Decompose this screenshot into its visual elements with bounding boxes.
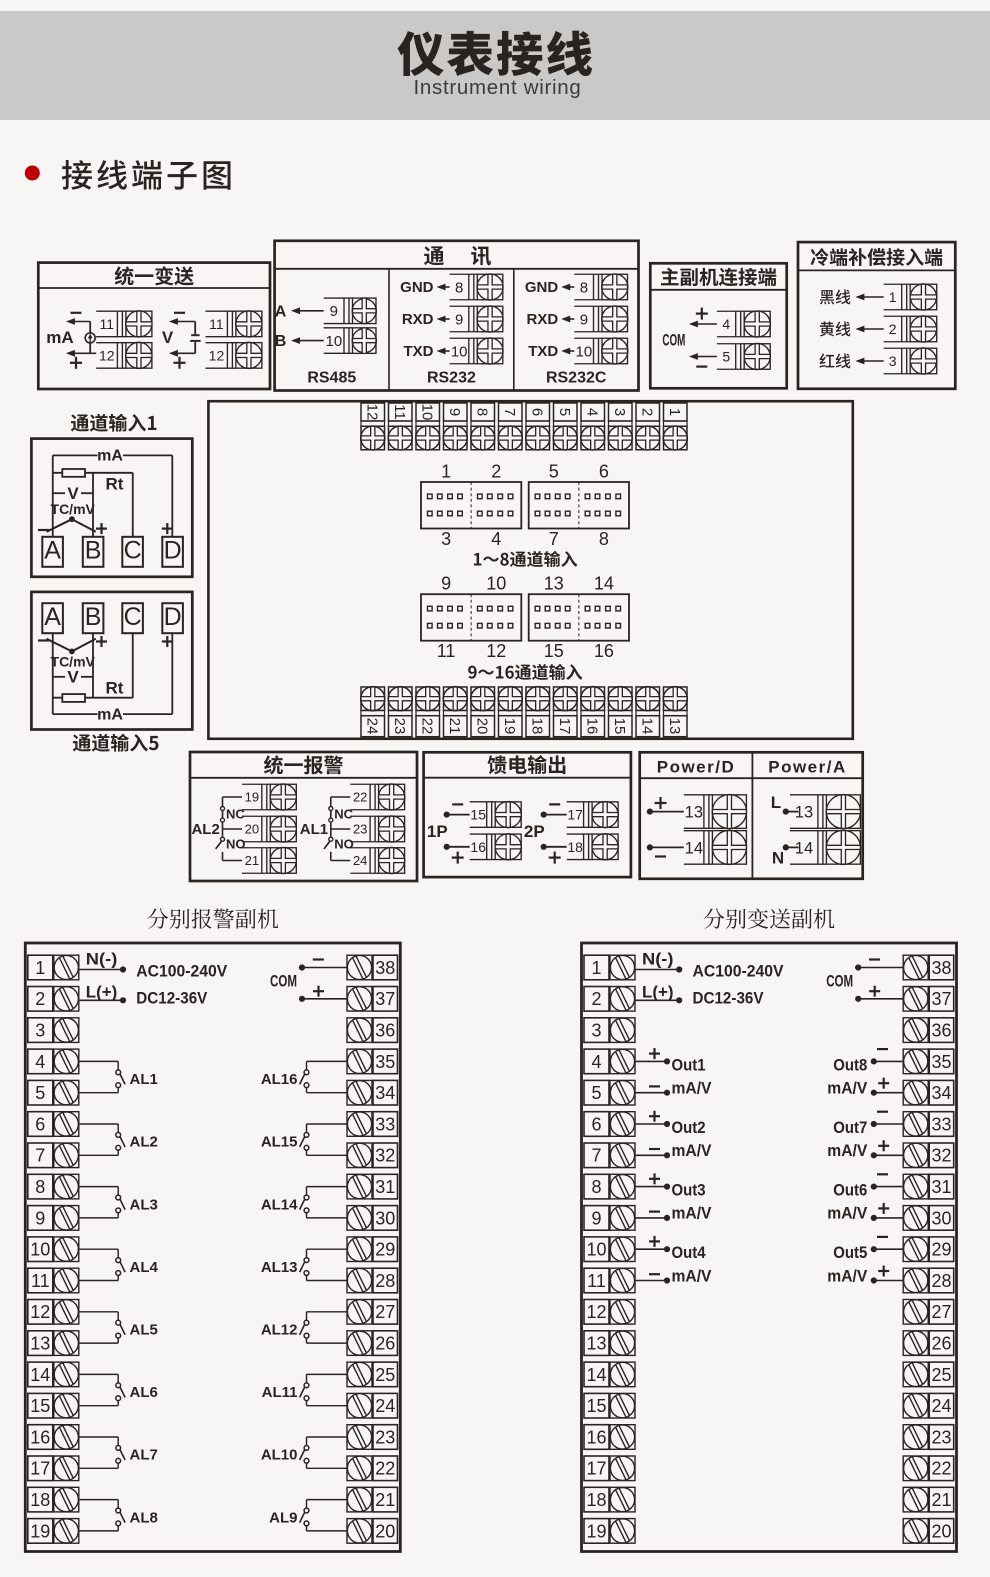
svg-text:DC12-36V: DC12-36V: [693, 989, 765, 1008]
svg-text:29: 29: [931, 1240, 951, 1260]
svg-text:N(-): N(-): [642, 950, 674, 969]
svg-text:DC12-36V: DC12-36V: [136, 989, 208, 1008]
svg-text:7: 7: [549, 529, 559, 549]
svg-text:TXD: TXD: [528, 343, 558, 360]
svg-text:24: 24: [353, 853, 367, 868]
svg-text:Out1: Out1: [672, 1055, 706, 1074]
svg-text:17: 17: [586, 1459, 606, 1479]
svg-text:37: 37: [375, 989, 395, 1009]
svg-text:B: B: [85, 537, 102, 565]
svg-text:11: 11: [437, 641, 456, 661]
svg-text:9: 9: [35, 1208, 45, 1228]
svg-text:8: 8: [35, 1177, 45, 1197]
svg-text:6: 6: [35, 1114, 45, 1134]
svg-text:AL7: AL7: [130, 1447, 158, 1464]
svg-text:N: N: [772, 849, 784, 868]
svg-text:14: 14: [795, 839, 813, 857]
svg-text:24: 24: [375, 1396, 395, 1416]
svg-text:mA: mA: [97, 707, 123, 724]
svg-text:5: 5: [549, 462, 559, 482]
svg-text:NO: NO: [334, 837, 354, 852]
svg-text:11: 11: [100, 316, 115, 332]
svg-text:14: 14: [30, 1365, 50, 1385]
svg-text:12: 12: [486, 641, 506, 661]
svg-text:COM: COM: [826, 972, 853, 991]
svg-text:24: 24: [931, 1396, 951, 1416]
svg-text:6: 6: [529, 408, 546, 416]
svg-text:AL9: AL9: [269, 1509, 297, 1526]
svg-text:21: 21: [245, 853, 259, 868]
svg-text:18: 18: [586, 1490, 606, 1510]
svg-text:6: 6: [591, 1114, 601, 1134]
svg-text:Out8: Out8: [833, 1055, 867, 1074]
svg-text:4: 4: [591, 1052, 601, 1072]
svg-text:23: 23: [375, 1427, 395, 1447]
svg-text:28: 28: [931, 1271, 951, 1291]
svg-text:C: C: [124, 537, 142, 565]
svg-text:Out3: Out3: [672, 1181, 706, 1200]
svg-text:37: 37: [931, 989, 951, 1009]
svg-text:4: 4: [491, 529, 501, 549]
svg-text:8: 8: [455, 279, 463, 296]
svg-text:mA: mA: [46, 328, 73, 347]
svg-text:L: L: [771, 793, 781, 812]
svg-text:16: 16: [584, 718, 601, 735]
svg-text:20: 20: [474, 718, 491, 735]
svg-text:COM: COM: [662, 332, 685, 350]
svg-text:Out5: Out5: [833, 1243, 867, 1262]
svg-text:34: 34: [375, 1083, 395, 1103]
svg-text:23: 23: [353, 822, 367, 837]
svg-text:A: A: [275, 303, 287, 320]
svg-text:2: 2: [591, 989, 601, 1009]
svg-text:mA/V: mA/V: [827, 1079, 868, 1098]
svg-text:7: 7: [591, 1146, 601, 1166]
svg-text:Out7: Out7: [833, 1118, 867, 1137]
svg-text:1: 1: [591, 958, 601, 978]
svg-text:8: 8: [591, 1177, 601, 1197]
svg-text:19: 19: [586, 1521, 606, 1541]
svg-text:26: 26: [375, 1334, 395, 1354]
svg-text:9: 9: [580, 311, 588, 328]
svg-text:5: 5: [35, 1083, 45, 1103]
svg-text:27: 27: [375, 1302, 395, 1322]
svg-text:38: 38: [931, 958, 951, 978]
svg-text:TXD: TXD: [404, 343, 434, 360]
svg-text:AL1: AL1: [300, 821, 328, 838]
svg-text:3: 3: [889, 353, 897, 369]
svg-text:20: 20: [375, 1521, 395, 1541]
svg-text:19: 19: [501, 718, 518, 735]
svg-text:2P: 2P: [524, 822, 545, 841]
svg-text:12: 12: [586, 1302, 606, 1322]
svg-text:2: 2: [35, 989, 45, 1009]
svg-text:4: 4: [35, 1052, 45, 1072]
svg-text:6: 6: [599, 462, 609, 482]
svg-text:2: 2: [889, 321, 897, 337]
svg-text:RS485: RS485: [307, 370, 356, 387]
svg-text:Rt: Rt: [106, 679, 124, 698]
svg-text:Power/D: Power/D: [657, 757, 736, 776]
svg-text:A: A: [44, 603, 61, 631]
svg-text:AL12: AL12: [261, 1321, 298, 1338]
svg-text:COM: COM: [270, 972, 297, 991]
svg-text:1: 1: [441, 462, 451, 482]
svg-text:RS232: RS232: [427, 370, 476, 387]
svg-text:17: 17: [556, 718, 573, 735]
svg-text:32: 32: [375, 1146, 395, 1166]
svg-text:Rt: Rt: [106, 475, 124, 494]
svg-text:4: 4: [722, 316, 730, 332]
svg-text:13: 13: [30, 1334, 50, 1354]
svg-text:25: 25: [931, 1365, 951, 1385]
svg-text:AC100-240V: AC100-240V: [693, 962, 785, 981]
svg-text:33: 33: [931, 1114, 951, 1134]
svg-text:21: 21: [375, 1490, 395, 1510]
svg-text:mA/V: mA/V: [827, 1141, 868, 1160]
svg-text:15: 15: [30, 1396, 50, 1416]
svg-text:N(-): N(-): [86, 950, 118, 969]
svg-text:4: 4: [584, 408, 601, 416]
svg-text:5: 5: [556, 408, 573, 416]
svg-text:10: 10: [576, 343, 593, 360]
svg-text:17: 17: [567, 807, 583, 823]
svg-text:11: 11: [31, 1271, 50, 1291]
svg-text:15: 15: [470, 807, 486, 823]
svg-text:mA/V: mA/V: [672, 1141, 713, 1160]
svg-text:RS232C: RS232C: [546, 370, 607, 387]
svg-text:1P: 1P: [427, 822, 448, 841]
svg-text:12: 12: [99, 347, 115, 363]
svg-text:C: C: [124, 603, 142, 631]
svg-text:Out4: Out4: [672, 1243, 706, 1262]
svg-text:V: V: [67, 668, 79, 687]
svg-text:mA/V: mA/V: [672, 1204, 713, 1223]
svg-text:10: 10: [586, 1240, 606, 1260]
svg-text:10: 10: [419, 404, 436, 421]
svg-text:B: B: [275, 333, 287, 350]
svg-text:9: 9: [330, 303, 338, 320]
svg-text:AL2: AL2: [191, 821, 219, 838]
svg-text:Out2: Out2: [672, 1118, 706, 1137]
svg-text:L(+): L(+): [86, 983, 118, 1002]
svg-text:27: 27: [931, 1302, 951, 1322]
svg-text:28: 28: [375, 1271, 395, 1291]
svg-text:12: 12: [30, 1302, 50, 1322]
svg-text:34: 34: [931, 1083, 951, 1103]
svg-text:mA/V: mA/V: [827, 1204, 868, 1223]
svg-text:8: 8: [474, 408, 491, 416]
svg-text:5: 5: [722, 349, 730, 365]
svg-text:AL16: AL16: [261, 1071, 298, 1088]
svg-text:16: 16: [586, 1427, 606, 1447]
svg-text:AC100-240V: AC100-240V: [136, 962, 228, 981]
svg-text:10: 10: [451, 343, 468, 360]
svg-text:3: 3: [591, 1021, 601, 1041]
svg-text:AL1: AL1: [130, 1071, 158, 1088]
svg-text:30: 30: [375, 1208, 395, 1228]
svg-text:23: 23: [391, 718, 408, 735]
svg-text:17: 17: [30, 1459, 50, 1479]
svg-text:29: 29: [375, 1240, 395, 1260]
svg-text:32: 32: [931, 1146, 951, 1166]
svg-text:22: 22: [931, 1459, 951, 1479]
svg-text:13: 13: [685, 804, 703, 822]
svg-text:14: 14: [639, 718, 656, 735]
svg-text:3: 3: [611, 408, 628, 416]
svg-text:2: 2: [639, 408, 656, 416]
svg-text:5: 5: [591, 1083, 601, 1103]
svg-text:AL13: AL13: [261, 1259, 298, 1276]
svg-text:7: 7: [501, 408, 518, 416]
svg-text:NO: NO: [226, 837, 246, 852]
svg-text:25: 25: [375, 1365, 395, 1385]
svg-text:A: A: [44, 537, 61, 565]
svg-text:9: 9: [455, 311, 463, 328]
svg-text:12: 12: [209, 347, 225, 363]
svg-text:AL4: AL4: [130, 1259, 159, 1276]
svg-text:9: 9: [446, 408, 463, 416]
svg-text:mA/V: mA/V: [827, 1266, 868, 1285]
svg-text:12: 12: [364, 404, 381, 421]
svg-text:14: 14: [586, 1365, 606, 1385]
svg-text:15: 15: [544, 641, 564, 661]
svg-text:AL15: AL15: [261, 1134, 298, 1151]
svg-text:AL10: AL10: [261, 1447, 298, 1464]
svg-text:21: 21: [931, 1490, 951, 1510]
svg-text:AL6: AL6: [130, 1384, 158, 1401]
svg-text:8: 8: [599, 529, 609, 549]
svg-text:RXD: RXD: [527, 311, 559, 328]
svg-text:11: 11: [391, 404, 408, 420]
svg-text:13: 13: [586, 1334, 606, 1354]
svg-text:GND: GND: [525, 279, 559, 296]
svg-text:21: 21: [446, 718, 463, 735]
svg-text:Instrument wiring: Instrument wiring: [414, 76, 582, 99]
svg-text:23: 23: [931, 1427, 951, 1447]
svg-text:16: 16: [594, 641, 614, 661]
svg-text:35: 35: [375, 1052, 395, 1072]
svg-text:13: 13: [795, 804, 813, 822]
svg-text:22: 22: [375, 1459, 395, 1479]
svg-text:AL11: AL11: [262, 1384, 298, 1401]
svg-text:16: 16: [470, 839, 486, 855]
svg-text:NC: NC: [226, 806, 245, 821]
svg-text:mA/V: mA/V: [672, 1266, 713, 1285]
svg-text:2: 2: [491, 462, 501, 482]
svg-text:26: 26: [931, 1334, 951, 1354]
svg-text:D: D: [164, 603, 182, 631]
svg-text:3: 3: [35, 1021, 45, 1041]
svg-text:14: 14: [594, 574, 614, 594]
svg-text:19: 19: [30, 1521, 50, 1541]
svg-text:9: 9: [441, 574, 451, 594]
svg-text:20: 20: [245, 822, 259, 837]
svg-text:mA/V: mA/V: [672, 1079, 713, 1098]
svg-text:36: 36: [931, 1021, 951, 1041]
svg-text:AL2: AL2: [130, 1134, 158, 1151]
svg-text:13: 13: [544, 574, 564, 594]
svg-text:14: 14: [685, 839, 703, 857]
svg-text:RXD: RXD: [402, 311, 434, 328]
svg-text:15: 15: [611, 718, 628, 735]
svg-text:1: 1: [666, 408, 683, 416]
svg-text:18: 18: [567, 839, 583, 855]
svg-text:10: 10: [326, 333, 343, 350]
svg-text:AL3: AL3: [130, 1196, 158, 1213]
svg-text:35: 35: [931, 1052, 951, 1072]
svg-text:11: 11: [587, 1271, 606, 1291]
svg-text:18: 18: [30, 1490, 50, 1510]
svg-text:3: 3: [441, 529, 451, 549]
svg-text:V: V: [162, 328, 174, 347]
svg-text:38: 38: [375, 958, 395, 978]
svg-text:B: B: [85, 603, 102, 631]
svg-text:9: 9: [591, 1208, 601, 1228]
svg-text:D: D: [164, 537, 182, 565]
svg-text:31: 31: [931, 1177, 951, 1197]
svg-text:20: 20: [931, 1521, 951, 1541]
svg-text:15: 15: [586, 1396, 606, 1416]
svg-text:Power/A: Power/A: [768, 757, 847, 776]
svg-text:36: 36: [375, 1021, 395, 1041]
svg-text:8: 8: [580, 279, 588, 296]
svg-text:mA: mA: [97, 448, 123, 465]
svg-text:GND: GND: [400, 279, 434, 296]
svg-text:16: 16: [30, 1427, 50, 1447]
svg-text:L(+): L(+): [642, 983, 674, 1002]
svg-text:22: 22: [419, 718, 436, 735]
svg-text:AL8: AL8: [130, 1509, 158, 1526]
svg-text:AL5: AL5: [130, 1321, 158, 1338]
svg-text:NC: NC: [334, 806, 353, 821]
svg-text:19: 19: [245, 790, 259, 805]
svg-text:7: 7: [35, 1146, 45, 1166]
svg-text:33: 33: [375, 1114, 395, 1134]
svg-text:1: 1: [889, 289, 897, 305]
svg-text:13: 13: [666, 718, 683, 735]
svg-text:1: 1: [35, 958, 45, 978]
svg-text:TC/mV: TC/mV: [51, 501, 96, 517]
svg-text:22: 22: [353, 790, 367, 805]
svg-text:Out6: Out6: [833, 1181, 867, 1200]
svg-text:11: 11: [209, 316, 224, 332]
svg-text:10: 10: [486, 574, 506, 594]
svg-text:24: 24: [364, 718, 381, 735]
svg-text:30: 30: [931, 1208, 951, 1228]
svg-text:10: 10: [30, 1240, 50, 1260]
svg-text:18: 18: [529, 718, 546, 735]
svg-text:31: 31: [375, 1177, 395, 1197]
svg-text:AL14: AL14: [261, 1196, 298, 1213]
